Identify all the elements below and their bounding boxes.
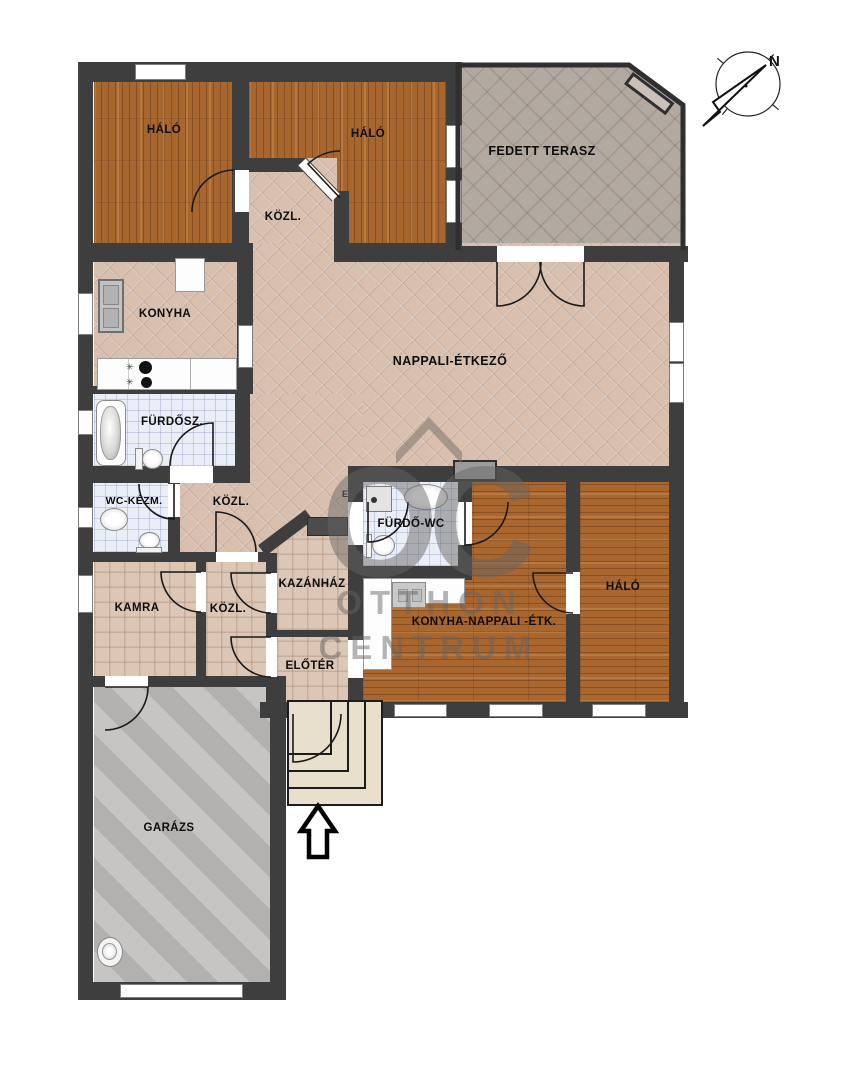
room-label-garazs: GARÁZS — [144, 822, 195, 834]
room-label-eloter: ELŐTÉR — [285, 660, 334, 672]
door-swing — [105, 687, 148, 730]
room-label-fedett-terasz: FEDETT TERASZ — [488, 144, 595, 158]
room-label-wc-kezmoso: WC-KÉZM. — [106, 495, 163, 507]
room-label-furdo-wc: FÜRDŐ-WC — [377, 518, 444, 530]
room-label-kamra: KAMRA — [115, 602, 160, 614]
door-swing — [192, 170, 234, 212]
room-label-furdoszoba: FÜRDŐSZ. — [141, 416, 203, 428]
floor-plan: ✳ ✳ E — [0, 0, 858, 1080]
door-swing — [170, 423, 213, 466]
room-label-kazanhaz: KAZÁNHÁZ — [278, 578, 345, 590]
door-swing — [308, 151, 340, 198]
door-swing — [231, 637, 271, 677]
room-label-kozl-lower: KÖZL. — [210, 603, 247, 615]
room-label-halo-1: HÁLÓ — [147, 124, 181, 136]
room-label-konyha-nappali: KONYHA-NAPPALI -ÉTK. — [412, 616, 557, 628]
door-swing — [293, 714, 341, 762]
room-label-kozl-middle: KÖZL. — [213, 496, 250, 508]
door-swing — [161, 572, 201, 612]
room-label-konyha: KONYHA — [139, 308, 191, 320]
room-label-kozl-upper: KÖZL. — [265, 211, 302, 223]
room-label-nappali-etkezo: NAPPALI-ÉTKEZŐ — [393, 354, 507, 368]
door-swing — [540, 262, 584, 306]
door-swing — [533, 573, 573, 613]
compass-rose-icon: N — [703, 52, 780, 126]
door-swing — [216, 512, 256, 552]
door-swing — [497, 262, 541, 306]
entrance-arrow-icon — [301, 806, 335, 857]
room-label-halo-3: HÁLÓ — [606, 581, 640, 593]
watermark-line2: CENTRUM — [319, 629, 540, 667]
room-label-halo-2: HÁLÓ — [351, 128, 385, 140]
compass-north-label: N — [769, 53, 780, 70]
